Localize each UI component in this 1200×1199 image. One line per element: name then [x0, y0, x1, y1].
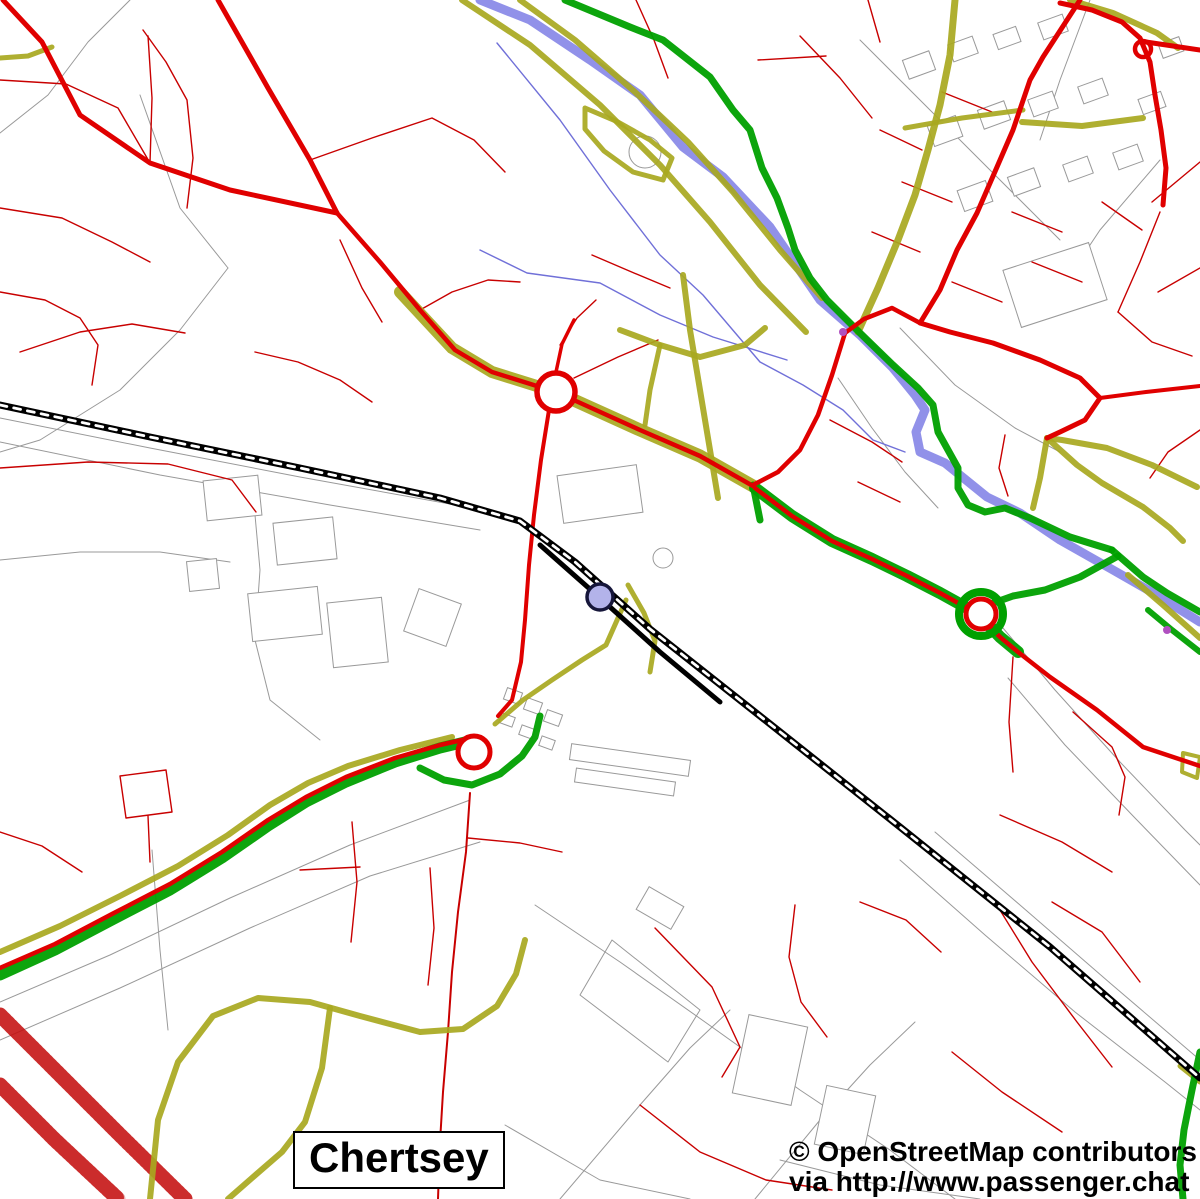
building-outline: [1113, 144, 1144, 170]
minor-road: [789, 905, 827, 1037]
building-outline: [1028, 91, 1059, 117]
building-outline: [539, 736, 556, 750]
minor-road: [1052, 902, 1140, 982]
minor-road: [868, 0, 880, 42]
minor-road: [800, 36, 872, 118]
minor-road: [468, 838, 562, 852]
footpath: [858, 0, 955, 332]
minor-road: [902, 182, 952, 202]
minor-road: [574, 340, 658, 378]
building-outline: [653, 548, 673, 568]
bridge-marker: [1163, 626, 1171, 634]
minor-road: [0, 292, 98, 385]
parcel-line: [1008, 678, 1200, 885]
field-boundary: [0, 418, 525, 523]
map-canvas: [0, 0, 1200, 1199]
field-boundary: [140, 95, 228, 268]
primary-road: [985, 556, 1118, 606]
minor-road: [0, 208, 150, 262]
major-road: [556, 320, 574, 372]
motorway-hatch-band: [0, 1085, 118, 1199]
attribution-line-1: © OpenStreetMap contributors: [789, 1137, 1197, 1167]
building-outline: [902, 51, 935, 79]
building-outline: [187, 559, 220, 592]
footpath: [645, 345, 660, 425]
building-outline: [404, 589, 462, 647]
building-outline: [1138, 91, 1166, 114]
footpath: [495, 600, 626, 724]
minor-road: [1102, 202, 1142, 230]
minor-road: [942, 92, 992, 112]
minor-road: [1118, 312, 1192, 356]
minor-road: [860, 902, 941, 952]
minor-road: [340, 240, 382, 322]
minor-road: [148, 36, 152, 163]
minor-road: [0, 832, 82, 872]
attribution-line-2: via http://www.passenger.chat: [789, 1167, 1197, 1197]
minor-road: [1118, 212, 1160, 312]
footpath: [1047, 438, 1197, 487]
building-outline: [1063, 156, 1094, 182]
parcel-line: [505, 1125, 690, 1199]
minor-road: [1012, 212, 1062, 232]
minor-road: [428, 868, 434, 985]
roundabout: [966, 599, 996, 629]
place-label-text: Chertsey: [309, 1134, 489, 1181]
minor-road: [143, 30, 193, 208]
building-outline: [248, 586, 323, 641]
building-outline: [1078, 78, 1109, 104]
roundabout: [458, 736, 490, 768]
building-outline: [1007, 168, 1040, 196]
building-outline: [557, 465, 643, 524]
attribution: © OpenStreetMap contributors via http://…: [789, 1137, 1197, 1197]
minor-road: [952, 282, 1002, 302]
minor-road: [148, 816, 150, 862]
minor-road: [300, 867, 360, 870]
footpath: [1033, 438, 1047, 508]
major-road: [1100, 386, 1200, 398]
minor-road: [655, 928, 740, 1077]
station-marker: [587, 584, 613, 610]
bridge-marker: [839, 328, 847, 336]
minor-road: [1152, 162, 1200, 202]
minor-road: [310, 118, 505, 172]
minor-road: [120, 770, 172, 818]
minor-road: [1000, 815, 1112, 872]
building-outline: [273, 517, 337, 565]
minor-road: [880, 130, 922, 150]
minor-road: [858, 482, 900, 502]
minor-road: [20, 324, 185, 352]
minor-road: [592, 255, 670, 288]
building-outline: [203, 475, 262, 521]
major-road: [218, 0, 337, 213]
minor-road: [999, 435, 1008, 496]
footpath: [400, 292, 556, 392]
map-root: Chertsey © OpenStreetMap contributors vi…: [0, 0, 1200, 1199]
railway-siding: [540, 545, 720, 702]
minor-road: [1009, 657, 1013, 772]
building-outline: [543, 710, 562, 727]
minor-road: [758, 56, 826, 60]
building-outline: [732, 1015, 807, 1106]
major-road: [498, 410, 549, 716]
place-label: Chertsey: [293, 1131, 505, 1189]
parcel-line: [935, 832, 1200, 1060]
building-outline: [636, 887, 684, 930]
minor-road: [255, 352, 372, 402]
roundabout: [537, 373, 575, 411]
primary-road: [0, 742, 465, 975]
footpath: [1022, 118, 1143, 126]
building-outline: [1003, 243, 1107, 328]
minor-road: [1158, 268, 1200, 292]
minor-road: [952, 1052, 1062, 1132]
major-road: [753, 333, 845, 485]
building-outline: [993, 26, 1021, 49]
street-line: [860, 40, 1060, 240]
minor-road: [420, 280, 520, 310]
building-outline: [580, 940, 700, 1062]
minor-road: [830, 420, 902, 462]
building-outline: [327, 597, 388, 667]
parcel-line: [560, 1010, 730, 1199]
